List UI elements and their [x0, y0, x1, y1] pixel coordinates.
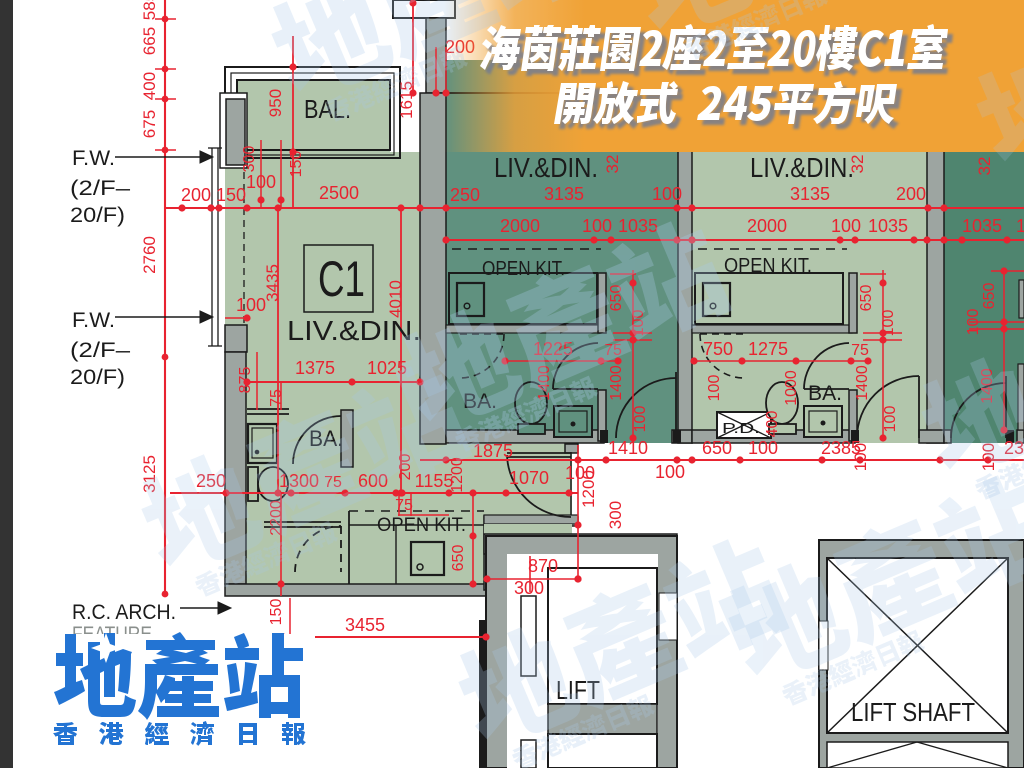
svg-text:3135: 3135 — [544, 184, 584, 204]
svg-text:75: 75 — [851, 342, 869, 359]
svg-text:32: 32 — [975, 157, 994, 176]
svg-text:1275: 1275 — [748, 339, 788, 359]
svg-text:20/F): 20/F) — [70, 366, 125, 389]
svg-text:1035: 1035 — [868, 216, 908, 236]
svg-text:950: 950 — [266, 89, 285, 117]
svg-text:1035: 1035 — [962, 216, 1002, 236]
svg-text:LIV.&DIN.: LIV.&DIN. — [494, 152, 598, 183]
svg-text:1000: 1000 — [783, 370, 800, 406]
svg-text:100: 100 — [706, 375, 723, 402]
svg-text:R.C. ARCH.: R.C. ARCH. — [72, 601, 176, 624]
svg-text:3135: 3135 — [790, 184, 830, 204]
svg-text:F.W.: F.W. — [72, 147, 115, 170]
svg-text:100: 100 — [880, 310, 897, 337]
svg-text:4010: 4010 — [386, 280, 405, 318]
svg-text:100: 100 — [882, 406, 899, 433]
svg-text:675: 675 — [140, 110, 159, 138]
svg-text:150: 150 — [268, 599, 285, 626]
svg-text:32: 32 — [603, 155, 622, 174]
svg-text:750: 750 — [703, 339, 733, 359]
svg-text:2000: 2000 — [747, 216, 787, 236]
svg-text:1400: 1400 — [854, 365, 871, 401]
svg-text:3455: 3455 — [345, 615, 385, 635]
svg-text:650: 650 — [981, 283, 998, 310]
svg-text:1200: 1200 — [579, 470, 598, 508]
svg-text:100: 100 — [652, 184, 682, 204]
svg-text:100: 100 — [831, 216, 861, 236]
svg-text:870: 870 — [528, 556, 558, 576]
svg-text:F.W.: F.W. — [72, 309, 115, 332]
svg-text:100: 100 — [632, 406, 649, 433]
svg-text:300: 300 — [514, 578, 544, 598]
svg-text:650: 650 — [450, 545, 467, 572]
svg-text:100: 100 — [236, 295, 266, 315]
svg-text:20/F): 20/F) — [70, 204, 125, 227]
svg-text:585: 585 — [140, 0, 159, 20]
svg-text:100: 100 — [965, 309, 982, 336]
svg-text:1035: 1035 — [618, 216, 658, 236]
svg-text:2760: 2760 — [140, 236, 159, 274]
svg-text:665: 665 — [140, 27, 159, 55]
svg-text:P.D.: P.D. — [722, 420, 760, 437]
svg-text:75: 75 — [268, 389, 285, 407]
svg-text:OPEN KIT.: OPEN KIT. — [724, 255, 812, 277]
svg-text:650: 650 — [858, 285, 875, 312]
svg-text:LIFT SHAFT: LIFT SHAFT — [851, 697, 975, 727]
svg-text:LIV.&DIN.: LIV.&DIN. — [750, 152, 854, 183]
svg-text:200: 200 — [896, 184, 926, 204]
svg-text:100: 100 — [851, 443, 870, 471]
svg-text:2500: 2500 — [319, 183, 359, 203]
svg-text:C1: C1 — [318, 251, 365, 307]
svg-text:400: 400 — [764, 411, 781, 438]
svg-text:10: 10 — [1016, 216, 1024, 236]
svg-text:100: 100 — [748, 438, 778, 458]
svg-text:75: 75 — [395, 497, 413, 514]
svg-text:875: 875 — [237, 367, 254, 394]
svg-text:400: 400 — [140, 72, 159, 100]
svg-text:1400: 1400 — [608, 365, 625, 401]
svg-text:100: 100 — [582, 216, 612, 236]
svg-text:250: 250 — [450, 185, 480, 205]
svg-text:650: 650 — [702, 438, 732, 458]
svg-text:100: 100 — [246, 172, 276, 192]
svg-text:300: 300 — [241, 146, 258, 173]
svg-text:(2/F–: (2/F– — [70, 339, 130, 362]
svg-text:1070: 1070 — [509, 468, 549, 488]
svg-text:150: 150 — [216, 185, 246, 205]
svg-text:LIV.&DIN.: LIV.&DIN. — [287, 315, 421, 346]
svg-text:1410: 1410 — [608, 438, 648, 458]
svg-text:1155: 1155 — [415, 471, 454, 491]
svg-text:1375: 1375 — [295, 358, 335, 378]
svg-text:1200: 1200 — [449, 457, 466, 493]
svg-text:OPEN KIT.: OPEN KIT. — [482, 258, 565, 280]
svg-text:200: 200 — [181, 185, 211, 205]
svg-text:OPEN KIT.: OPEN KIT. — [377, 515, 466, 536]
svg-text:(2/F–: (2/F– — [70, 177, 130, 200]
svg-text:BA.: BA. — [808, 382, 842, 405]
svg-text:300: 300 — [606, 501, 625, 529]
svg-text:2000: 2000 — [500, 216, 540, 236]
svg-text:100: 100 — [655, 462, 685, 482]
svg-text:150: 150 — [288, 151, 305, 178]
